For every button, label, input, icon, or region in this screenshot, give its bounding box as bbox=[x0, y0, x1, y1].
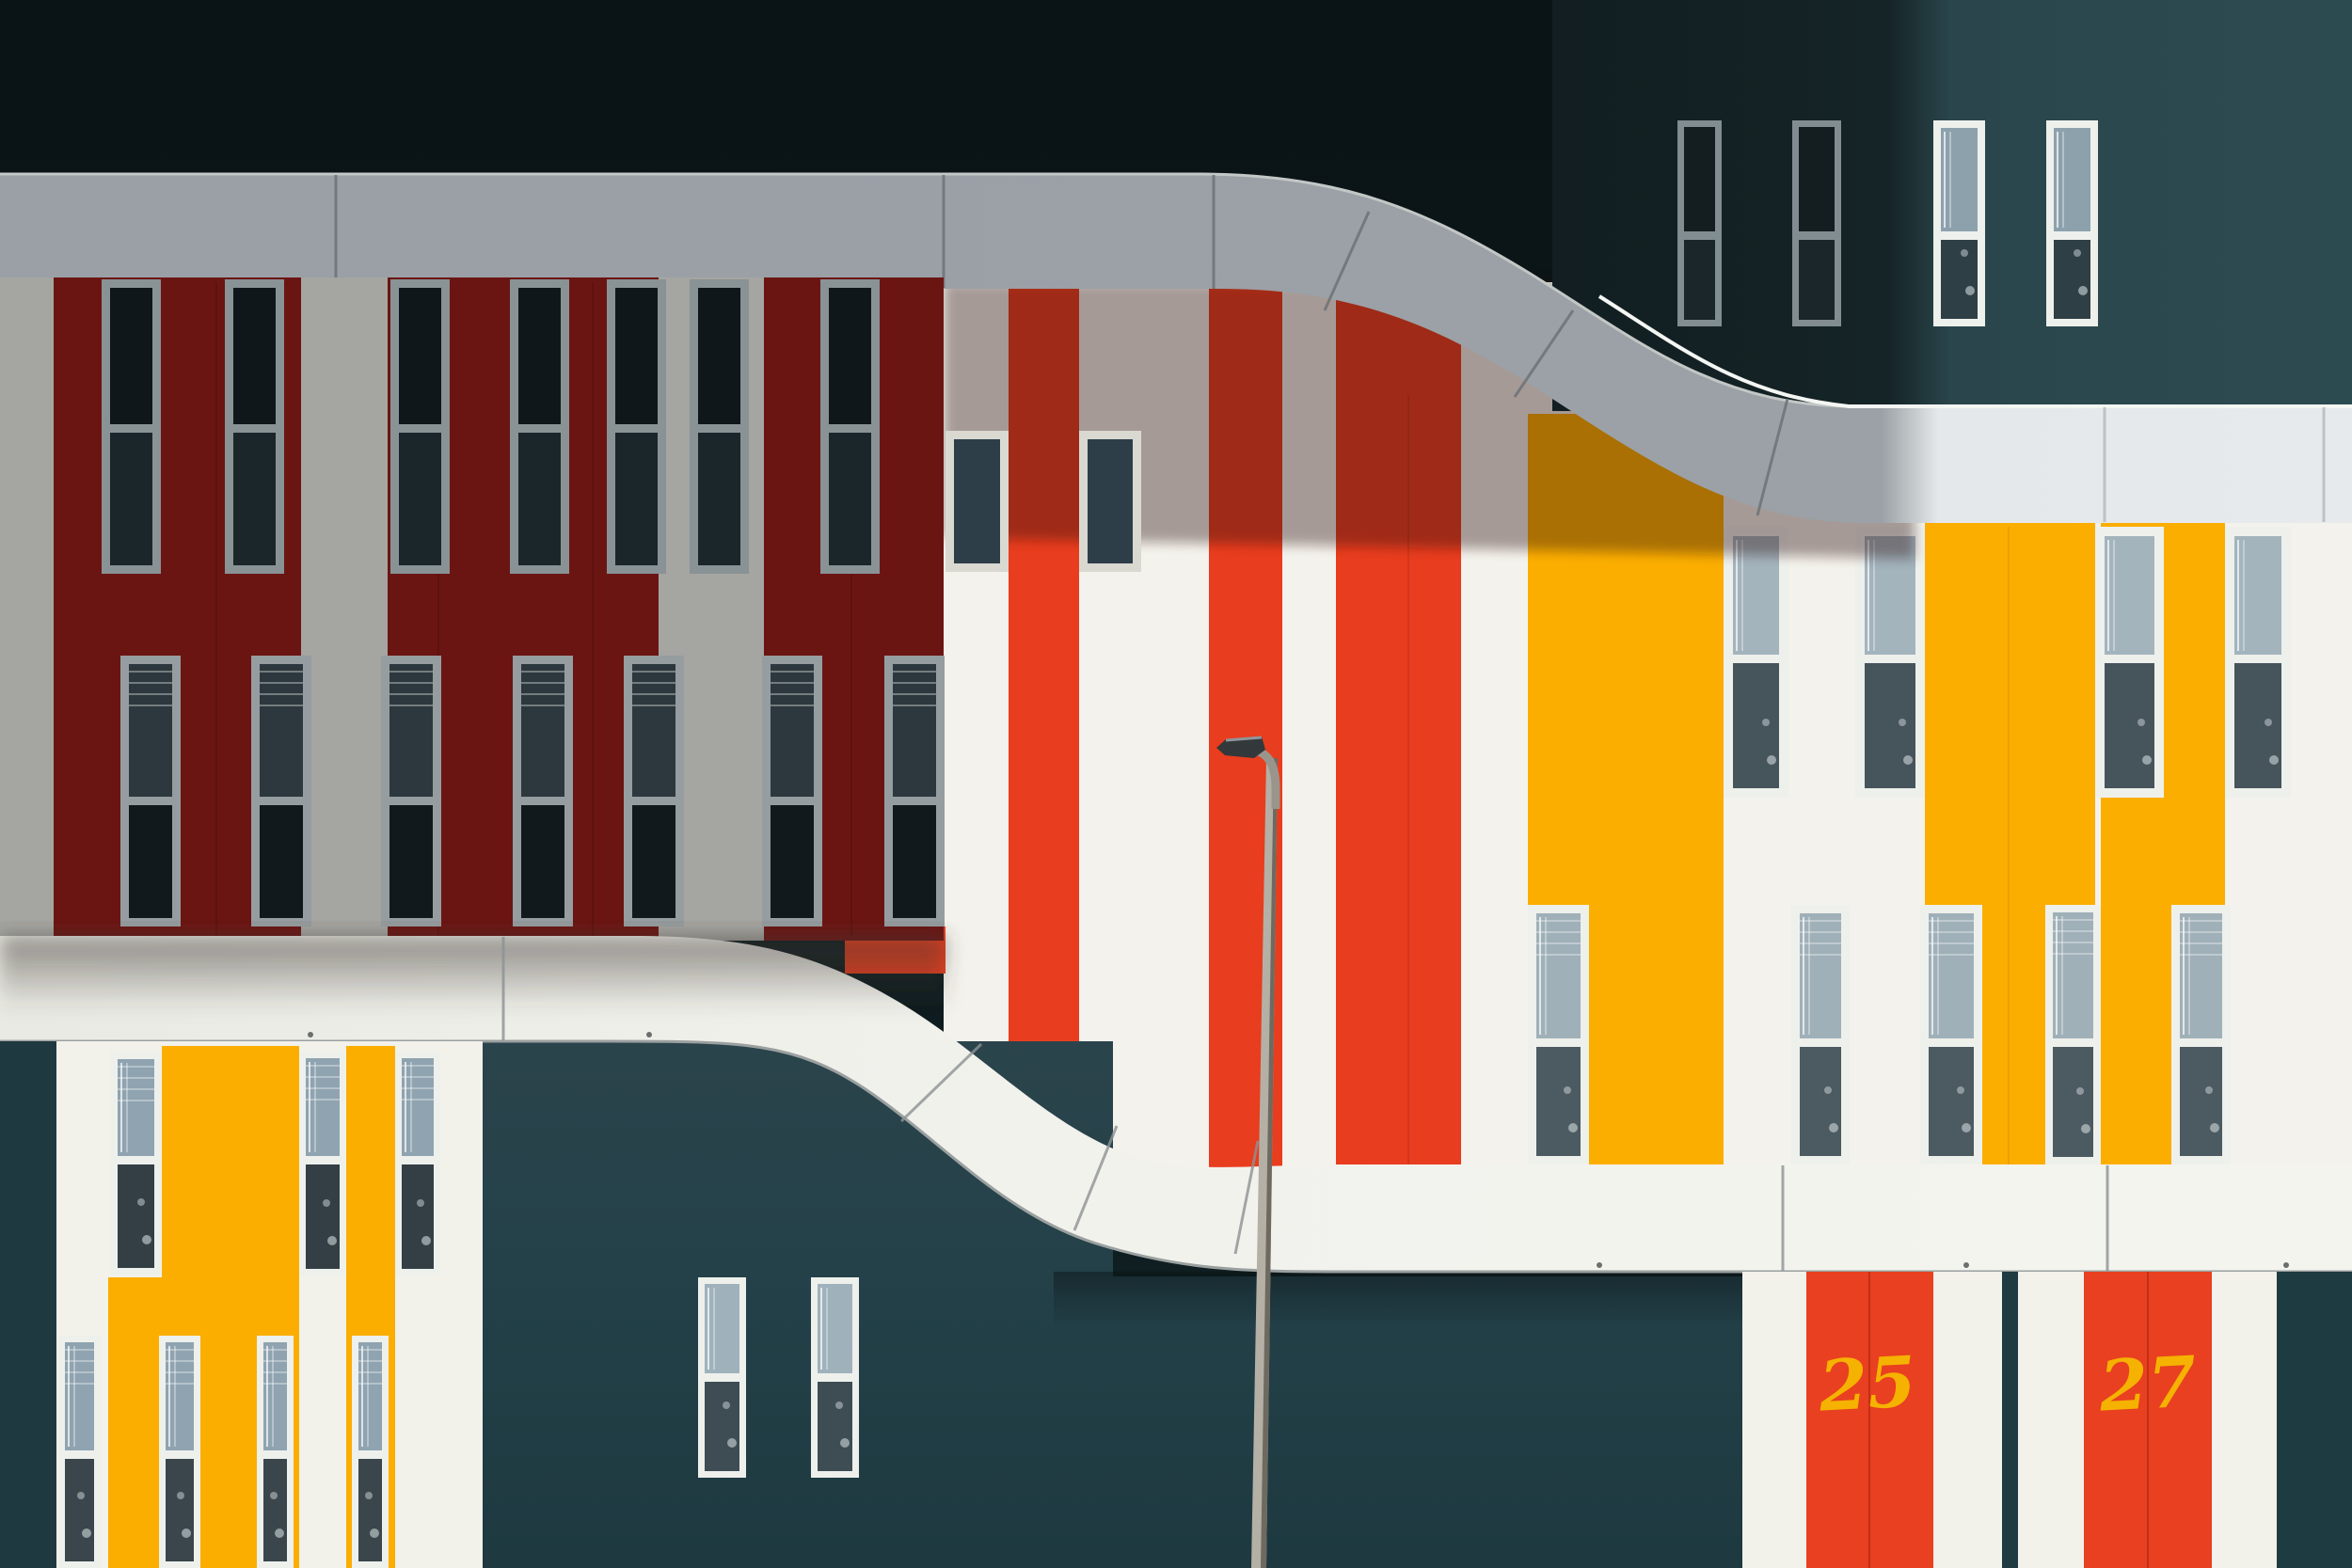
window bbox=[510, 279, 569, 574]
window bbox=[820, 279, 880, 574]
window bbox=[1792, 120, 1841, 326]
photo-canvas: 25 27 bbox=[0, 0, 2352, 1568]
yellow-facade bbox=[0, 1041, 483, 1568]
facade-panel bbox=[0, 277, 54, 941]
window bbox=[884, 656, 945, 927]
window bbox=[2046, 120, 2098, 326]
window bbox=[159, 1336, 200, 1568]
window bbox=[257, 1336, 294, 1568]
window bbox=[299, 1052, 346, 1275]
window bbox=[2171, 905, 2231, 1164]
window bbox=[58, 1336, 101, 1568]
yellow-stripe bbox=[108, 1277, 162, 1568]
window bbox=[607, 279, 666, 574]
window bbox=[1791, 905, 1850, 1164]
window bbox=[762, 656, 822, 927]
window bbox=[1677, 120, 1722, 326]
window bbox=[1079, 431, 1141, 572]
teal-upper-wall bbox=[1552, 0, 2352, 411]
window bbox=[225, 279, 284, 574]
window bbox=[2095, 527, 2164, 798]
window bbox=[946, 431, 1009, 572]
window bbox=[352, 1336, 389, 1568]
window bbox=[1920, 905, 1982, 1164]
window bbox=[381, 656, 441, 927]
window bbox=[690, 279, 749, 574]
window bbox=[102, 279, 161, 574]
window bbox=[1855, 527, 1925, 798]
window bbox=[1528, 905, 1589, 1164]
building-facade-scene: 25 27 bbox=[0, 0, 2352, 1568]
window bbox=[120, 656, 181, 927]
window bbox=[624, 656, 684, 927]
window bbox=[1724, 527, 1788, 798]
door-number-27: 27 bbox=[2096, 1341, 2198, 1427]
window bbox=[513, 656, 573, 927]
window bbox=[1933, 120, 1985, 326]
window bbox=[2045, 905, 2101, 1164]
window bbox=[811, 1277, 859, 1478]
window bbox=[390, 279, 450, 574]
window bbox=[110, 1052, 162, 1275]
door-number-25: 25 bbox=[1816, 1341, 1917, 1427]
window bbox=[251, 656, 311, 927]
facade-panel bbox=[301, 277, 388, 941]
red-facade bbox=[0, 277, 945, 941]
window bbox=[2225, 527, 2291, 798]
window bbox=[395, 1052, 440, 1275]
window bbox=[698, 1277, 746, 1478]
doors-wall: 25 27 bbox=[1742, 1272, 2352, 1568]
